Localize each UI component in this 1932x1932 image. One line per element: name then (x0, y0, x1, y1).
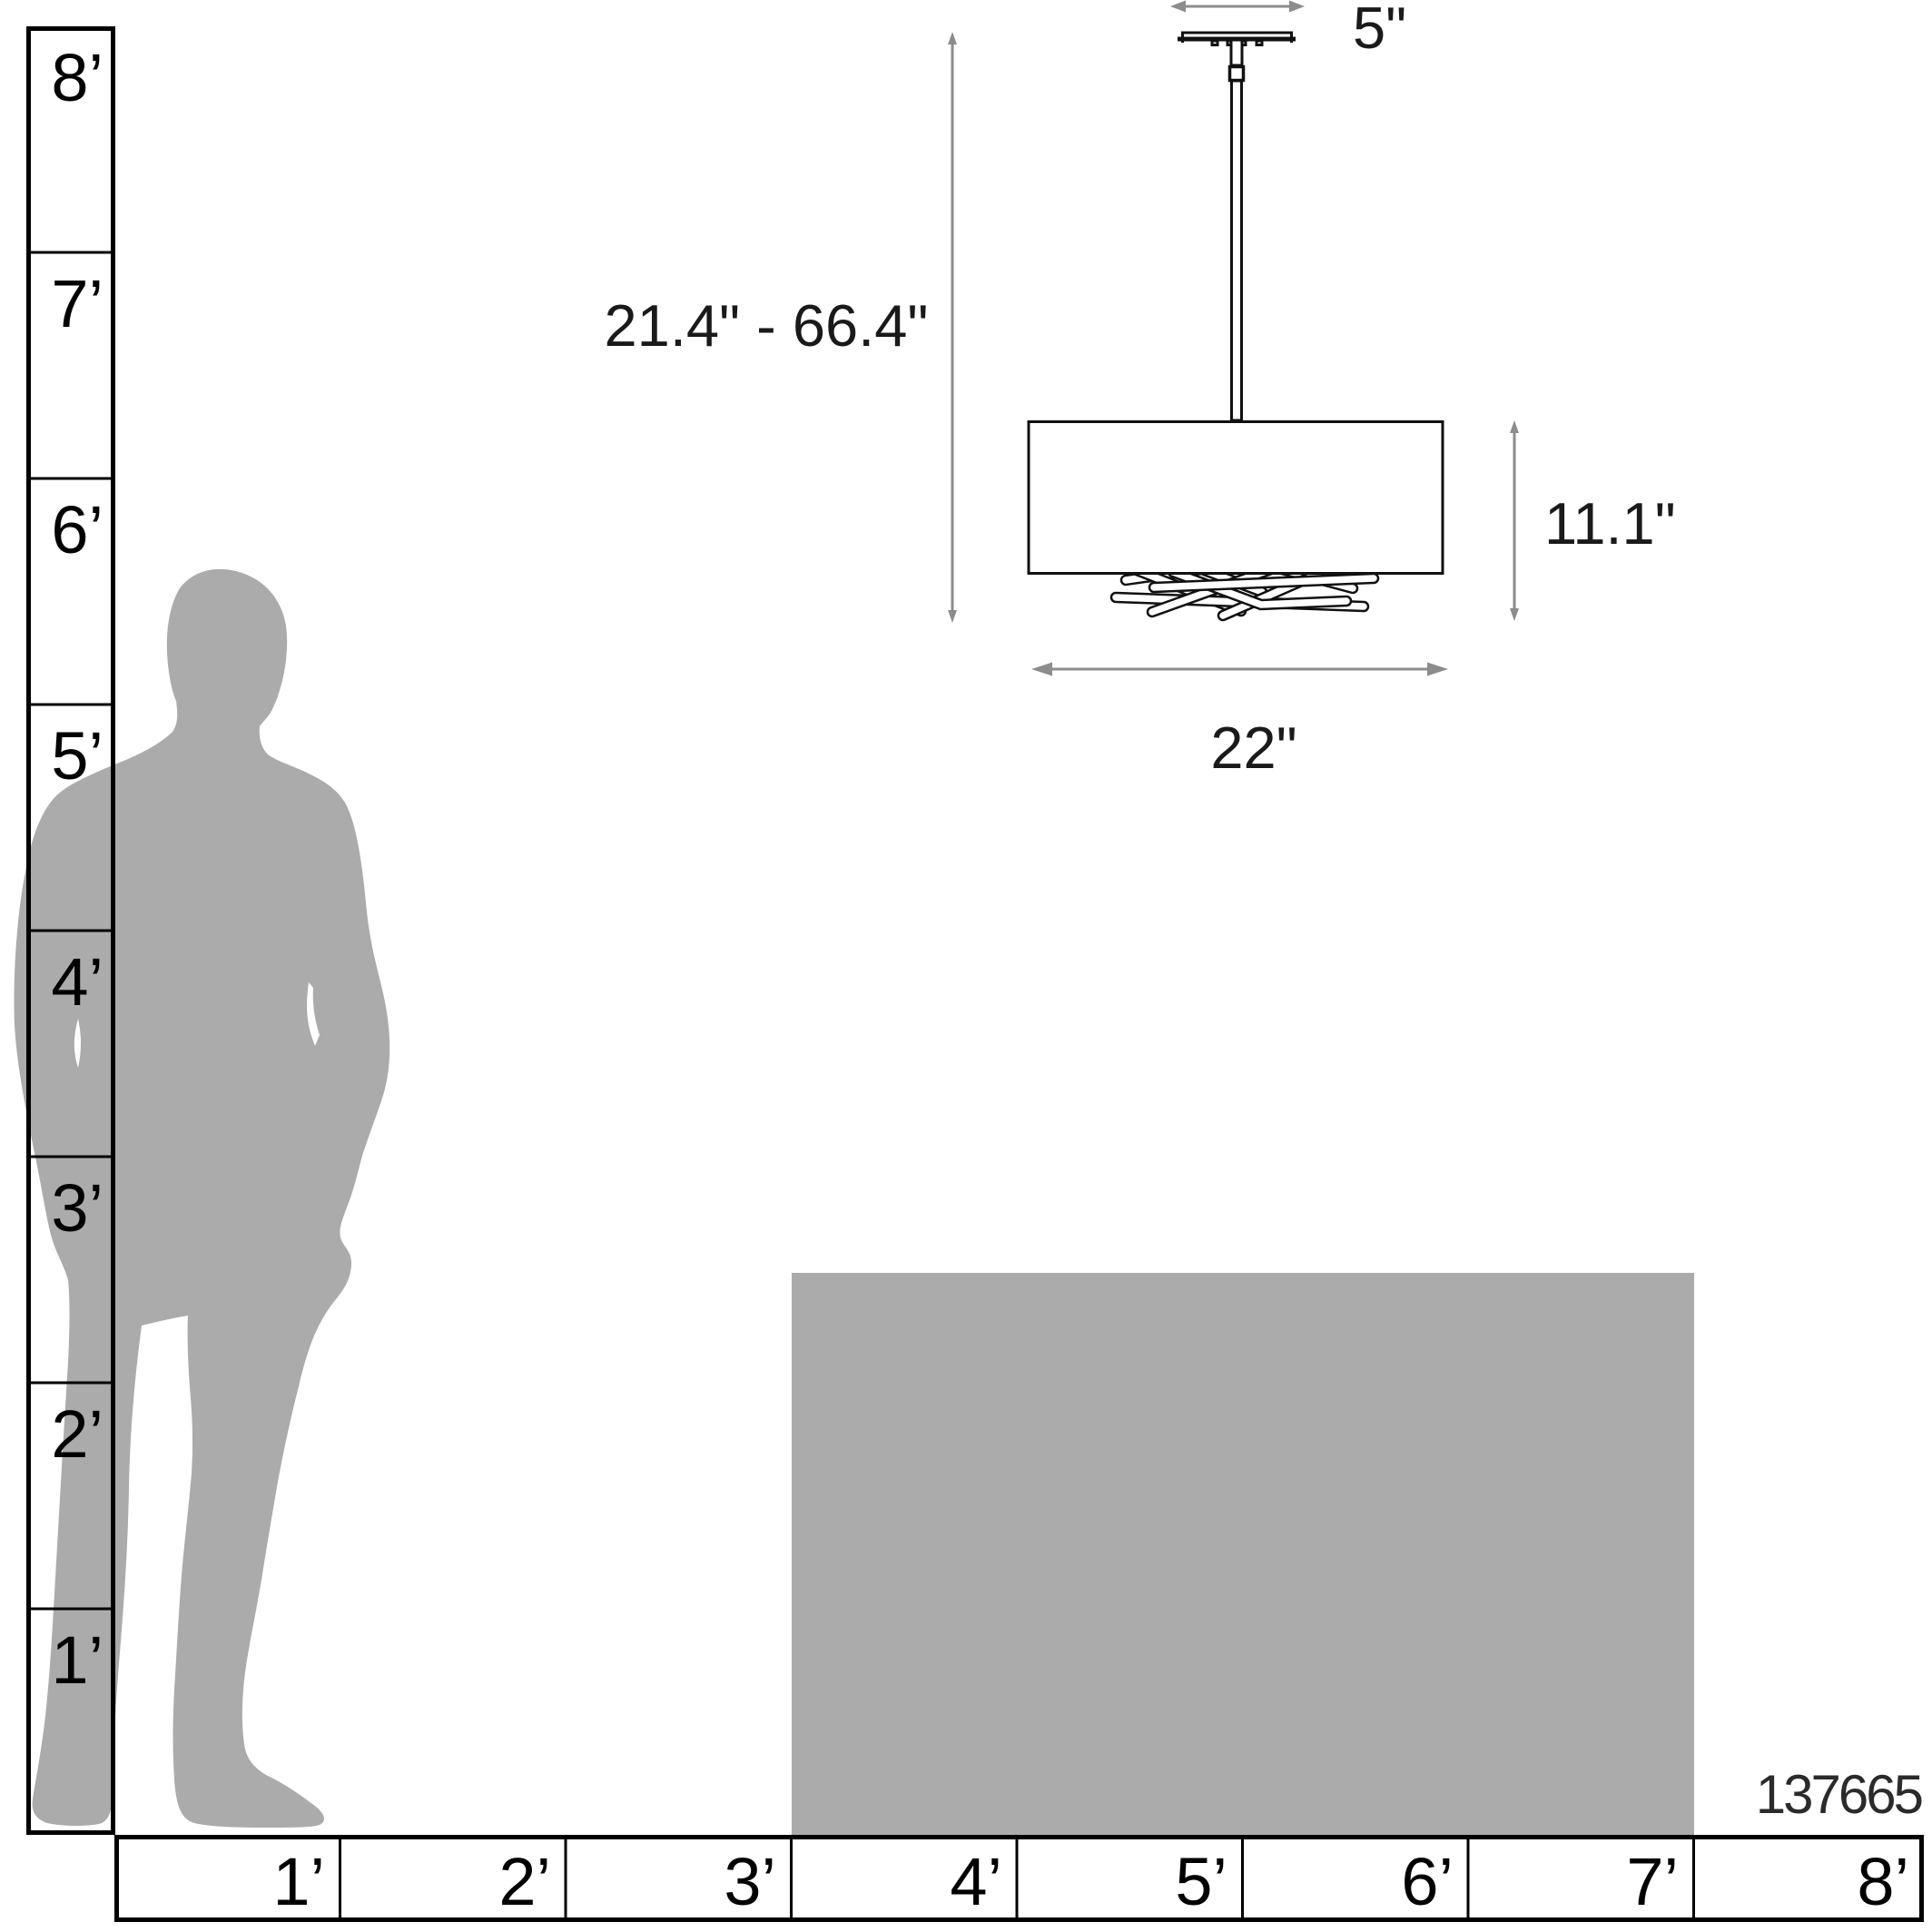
svg-text:7’: 7’ (1626, 1844, 1679, 1919)
svg-text:6’: 6’ (51, 492, 103, 567)
svg-text:2’: 2’ (51, 1396, 103, 1472)
svg-text:2’: 2’ (498, 1844, 551, 1919)
svg-text:1’: 1’ (51, 1622, 103, 1698)
svg-text:5": 5" (1353, 0, 1406, 61)
svg-text:5’: 5’ (51, 718, 103, 793)
svg-text:8’: 8’ (51, 40, 103, 115)
svg-text:137665: 137665 (1756, 1764, 1922, 1825)
svg-text:7’: 7’ (51, 266, 103, 341)
svg-text:21.4" - 66.4": 21.4" - 66.4" (605, 292, 929, 359)
svg-text:6’: 6’ (1401, 1844, 1454, 1919)
svg-text:22": 22" (1210, 715, 1296, 781)
svg-text:4’: 4’ (51, 944, 103, 1020)
svg-text:3’: 3’ (51, 1170, 103, 1246)
svg-text:11.1": 11.1" (1544, 490, 1676, 557)
svg-text:1’: 1’ (272, 1844, 325, 1919)
svg-text:5’: 5’ (1175, 1844, 1227, 1919)
svg-text:4’: 4’ (950, 1844, 1002, 1919)
svg-text:8’: 8’ (1857, 1844, 1909, 1919)
svg-text:3’: 3’ (724, 1844, 776, 1919)
